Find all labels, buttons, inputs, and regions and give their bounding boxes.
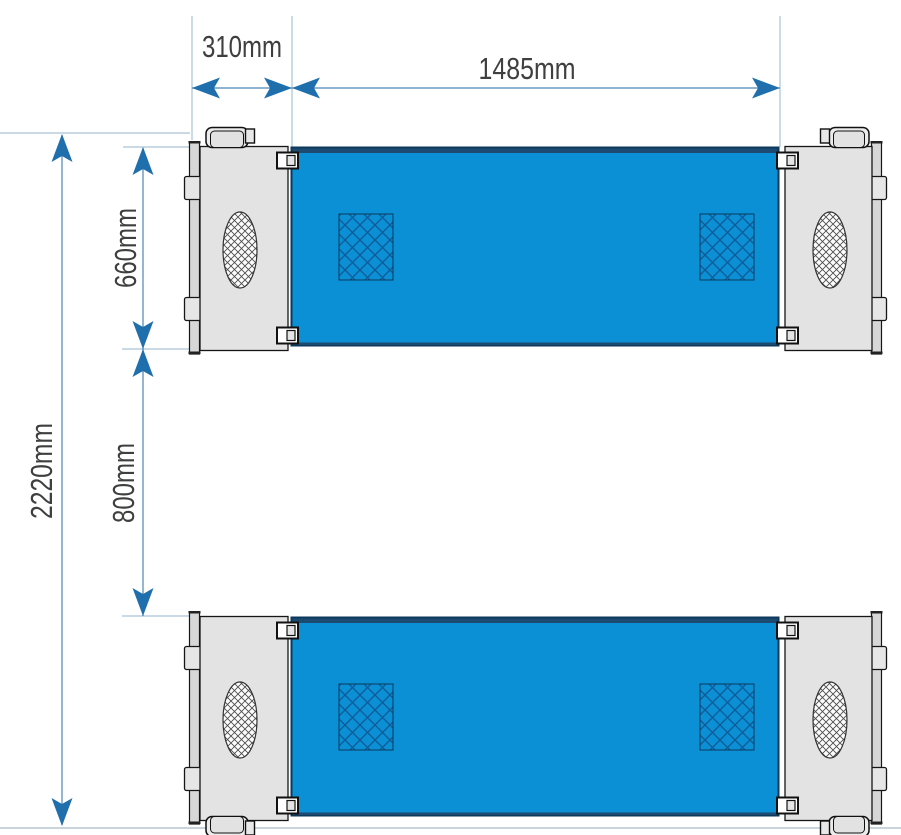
tread-oval-left [223,212,257,288]
drive-units-bottom [206,817,869,835]
tread-plate-right [700,214,754,280]
hinge-clip-bottom-left [277,328,298,344]
dimension-label-800: 800mm [106,443,141,523]
drive-units-top [206,128,869,148]
hinge-clip-top-right [777,153,798,169]
drive-unit-right [821,128,870,148]
drive-unit-left [206,128,255,148]
rail-cap [871,352,883,355]
rail-cap [189,352,201,355]
platform-bottom [185,611,887,824]
dimension-label-1485: 1485mm [479,51,576,86]
deck-edge-band-top [293,149,778,154]
platform-top [185,141,887,354]
dimension-2220: 2220mm [24,134,73,826]
dimension-660: 660mm [108,147,154,349]
dimension-label-2220: 2220mm [24,423,59,519]
side-rail-right [872,142,882,354]
hinge-clip-bottom-right [777,328,798,344]
deck-edge-band-bottom [293,343,778,346]
dimension-800: 800mm [106,349,154,616]
dimension-1485: 1485mm [292,51,780,99]
dimension-label-310: 310mm [202,29,282,64]
tread-plate-left [339,214,393,280]
side-rail-left [190,142,200,354]
dimension-label-660: 660mm [108,208,143,288]
lift-platform-technical-drawing: 310mm 1485mm 2220mm 660mm 800mm [0,0,901,835]
dimension-310: 310mm [192,29,292,99]
tread-oval-right [813,212,847,288]
rail-cap [871,141,883,144]
rail-cap [189,141,201,144]
hinge-clip-top-left [277,153,298,169]
